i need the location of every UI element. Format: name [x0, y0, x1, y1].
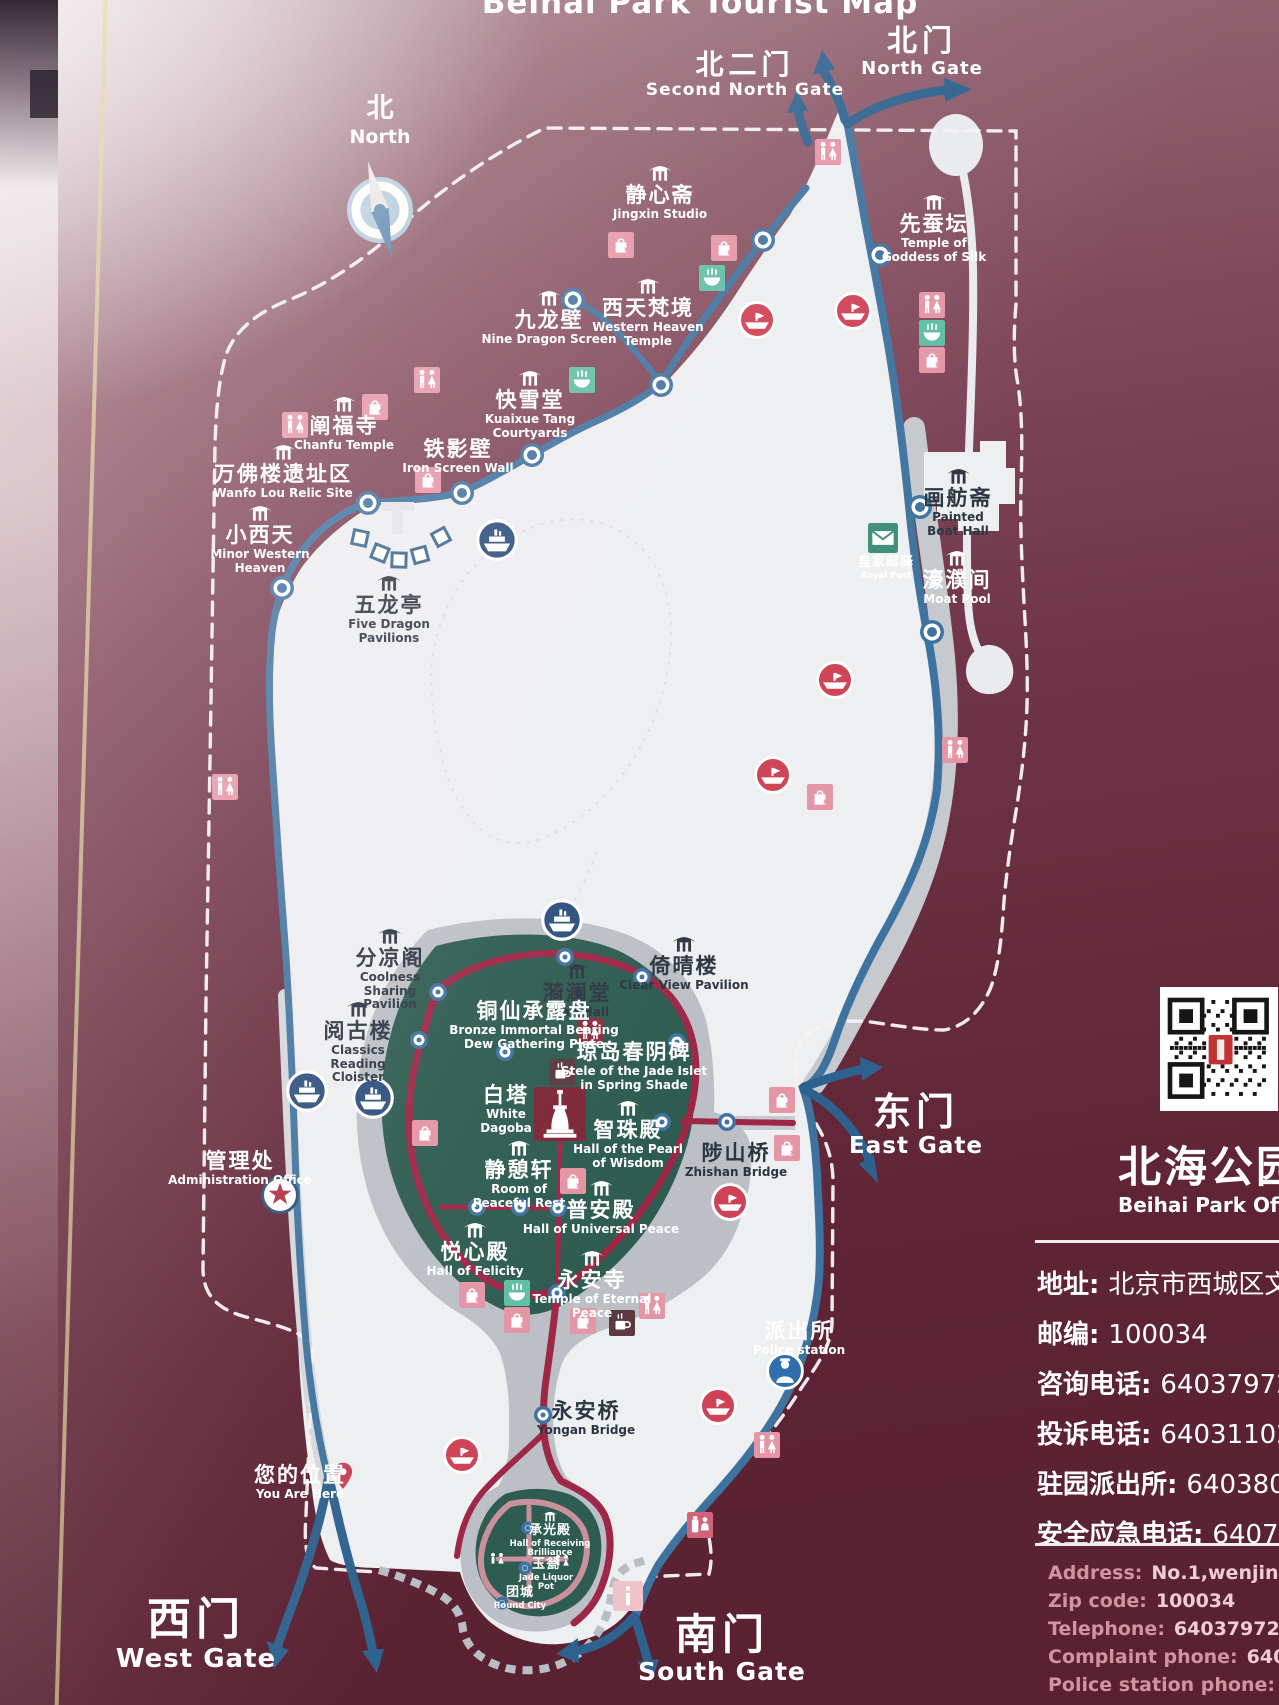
poi-label-zh: 永安寺	[531, 1269, 653, 1291]
poi-you-are-here: 您的位置You Are Here	[245, 1464, 355, 1502]
poi-label-zh: 皇家邮驿	[846, 556, 926, 570]
gate-label-en: West Gate	[116, 1644, 276, 1674]
poi-police-station: 派出所Police station	[744, 1320, 854, 1358]
police-icon	[766, 1352, 804, 1390]
poi-label-zh: 倚晴楼	[614, 955, 754, 977]
wc-icon	[212, 774, 238, 800]
gate-label-en: East Gate	[849, 1133, 983, 1159]
tourist-map-sign: Beihai Park Tourist Map 北 North 静心斋Jingx…	[0, 0, 1279, 1705]
contact-row-zh-label: 咨询电话:	[1037, 1370, 1151, 1400]
poi-classics-reading-cloister: 阅古楼Classics Reading Cloister	[306, 999, 411, 1085]
poi-stele-of-the-jade-islet-in-spring-shade: 琼岛春阴碑Stele of the Jade Islet in Spring S…	[558, 1041, 710, 1092]
contact-info-en: Address:No.1,wenjin street,xZip code:100…	[1048, 1562, 1279, 1705]
contact-row-en: Police station phone:64038	[1048, 1674, 1279, 1696]
poi-label-zh: 琼岛春阴碑	[558, 1041, 710, 1063]
contact-row-en-value: 64037972 / 6403	[1174, 1618, 1279, 1640]
poi-label-en: Yongan Bridge	[531, 1424, 641, 1437]
poi-zhishan-bridge: 陟山桥Zhishan Bridge	[681, 1142, 791, 1180]
poi-label-zh: 永安桥	[531, 1400, 641, 1422]
poi-painted-boat-hall: 画舫斋Painted Boat Hall	[924, 466, 993, 538]
poi-hall-of-universal-peace: 普安殿Hall of Universal Peace	[519, 1178, 684, 1237]
contact-row-en-value: 100034	[1156, 1590, 1235, 1612]
poi-temple-of-eternal-peace: 永安寺Temple of Eternal Peace	[531, 1248, 653, 1320]
contact-row-zh-label: 驻园派出所:	[1037, 1470, 1177, 1500]
poi-five-dragon-pavilions: 五龙亭Five Dragon Pavilions	[343, 573, 435, 645]
wc-icon	[815, 139, 841, 165]
contact-row-zh: 地址:北京市西城区文	[1037, 1264, 1279, 1301]
poi-label-zh: 阅古楼	[306, 1020, 411, 1042]
contact-row-zh-value: 北京市西城区文	[1108, 1270, 1279, 1300]
contact-row-en: Telephone:64037972 / 6403	[1048, 1618, 1279, 1640]
poi-label-zh: 画舫斋	[924, 487, 993, 509]
park-name-en: Beihai Park Offical	[1118, 1193, 1279, 1217]
poi-label-zh: 普安殿	[519, 1199, 684, 1221]
poi-label-zh: 铁影壁	[388, 438, 528, 460]
contact-row-en-value: No.1,wenjin street,x	[1151, 1562, 1279, 1584]
poi-royal-post: 皇家邮驿Royal Post	[846, 556, 926, 581]
gate-label-zh: 北门	[861, 26, 983, 58]
compass-icon	[337, 152, 423, 262]
poi-label-zh: 悦心殿	[420, 1241, 530, 1263]
poi-jingxin-studio: 静心斋Jingxin Studio	[605, 163, 715, 222]
poi-label-en: Hall of Felicity	[420, 1265, 530, 1278]
compass-north-en: North	[337, 126, 423, 148]
poi-white-dagoba: 白塔White Dagoba	[479, 1084, 534, 1135]
contact-row-zh: 邮编:100034	[1037, 1314, 1279, 1351]
poi-label-en: White Dagoba	[479, 1108, 534, 1135]
poi-label-zh: 玉瓮	[517, 1558, 575, 1572]
ship-icon	[541, 899, 583, 941]
contact-info-zh: 地址:北京市西城区文邮编:100034咨询电话:64037972投诉电话:640…	[1037, 1264, 1279, 1551]
poi-label-en: Hall of the Pearl of Wisdom	[572, 1143, 684, 1170]
poi-hall-of-the-pearl-of-wisdom: 智珠殿Hall of the Pearl of Wisdom	[572, 1098, 684, 1170]
poi-label-en: Moat Pool	[912, 593, 1002, 606]
poi-label-zh: 团城	[485, 1586, 555, 1600]
contact-row-zh-label: 地址:	[1037, 1270, 1099, 1300]
contact-row-en-label: Telephone:	[1048, 1618, 1165, 1640]
poi-label-en: Five Dragon Pavilions	[343, 618, 435, 645]
contact-row-en-label: Complaint phone:	[1048, 1646, 1238, 1668]
gate-north-gate: 北门 North Gate	[861, 26, 983, 79]
poi-label-en: Hall of Universal Peace	[519, 1223, 684, 1236]
poi-hall-of-receiving-brilliance: 承光殿Hall of Receiving Brilliance	[488, 1510, 613, 1559]
poi-label-en: Kuaixue Tang Courtyards	[480, 413, 580, 440]
contact-row-zh-label: 邮编:	[1037, 1320, 1099, 1350]
info-icon	[613, 1581, 643, 1611]
pavilion-icon	[614, 934, 754, 953]
poi-label-en: Temple of Eternal Peace	[531, 1293, 653, 1320]
shop-icon	[919, 347, 945, 373]
poi-label-zh: 管理处	[153, 1150, 328, 1172]
poi-label-en: Administration Office	[153, 1174, 328, 1187]
poi-label-zh: 阐福寺	[279, 415, 409, 437]
contact-row-zh-value: 100034	[1108, 1320, 1207, 1350]
shop-icon	[711, 235, 737, 261]
contact-row-zh-value: 64037972	[1160, 1370, 1279, 1400]
service-icon	[687, 1512, 713, 1538]
pavilion-icon	[470, 1138, 568, 1157]
poi-wanfo-lou-relic-site: 万佛楼遗址区Wanfo Lou Relic Site	[196, 442, 371, 501]
contact-row-en-label: Zip code:	[1048, 1590, 1147, 1612]
poi-label-zh: 小西天	[206, 524, 314, 546]
pavilion-icon	[572, 1098, 684, 1117]
contact-row-en: Complaint phone:6403110	[1048, 1646, 1279, 1668]
shop-icon	[807, 784, 833, 810]
poi-label-zh: 智珠殿	[572, 1119, 684, 1141]
gate-label-zh: 南门	[638, 1612, 806, 1657]
panel-divider-top	[1035, 1240, 1279, 1243]
poi-label-zh: 万佛楼遗址区	[196, 463, 371, 485]
pavilion-icon	[488, 1510, 613, 1522]
pavilion-icon	[532, 961, 622, 980]
poi-label-zh: 您的位置	[245, 1464, 355, 1486]
pavilion-icon	[605, 163, 715, 182]
wc-icon	[414, 367, 440, 393]
poi-label-zh: 派出所	[744, 1320, 854, 1342]
poi-label-en: Iron Screen Wall	[388, 462, 528, 475]
poi-minor-western-heaven: 小西天Minor Western Heaven	[206, 503, 314, 575]
poi-label-zh: 静心斋	[605, 184, 715, 206]
rest-icon	[504, 1280, 530, 1306]
boat-icon	[443, 1436, 481, 1474]
gate-label-en: North Gate	[861, 58, 983, 79]
poi-yongan-bridge: 永安桥Yongan Bridge	[531, 1400, 641, 1438]
poi-clear-view-pavilion: 倚晴楼Clear View Pavilion	[614, 934, 754, 993]
poi-label-en: Clear View Pavilion	[614, 979, 754, 992]
poi-temple-of-goddess-of-silk: 先蚕坛Temple of Goddess of Silk	[878, 192, 990, 264]
poi-label-en: Wanfo Lou Relic Site	[196, 487, 371, 500]
contact-row-zh-value: 64031102	[1160, 1420, 1279, 1450]
poi-label-en: Minor Western Heaven	[206, 548, 314, 575]
poi-label-en: Royal Post	[846, 572, 926, 582]
shop-icon	[769, 1087, 795, 1113]
pavilion-icon	[279, 394, 409, 413]
shop-icon	[412, 1120, 438, 1146]
poi-label-zh: 铜仙承露盘	[447, 1000, 622, 1022]
gate-label-zh: 东门	[849, 1092, 983, 1133]
rest-icon	[919, 320, 945, 346]
shop-icon	[459, 1282, 485, 1308]
gate-south-gate: 南门 South Gate	[638, 1612, 806, 1686]
contact-row-zh: 驻园派出所:640380	[1037, 1464, 1279, 1501]
contact-row-en: Address:No.1,wenjin street,x	[1048, 1562, 1279, 1584]
pavilion-icon	[878, 192, 990, 211]
contact-row-en-label: Address:	[1048, 1562, 1142, 1584]
poi-kuaixue-tang-courtyards: 快雪堂Kuaixue Tang Courtyards	[480, 368, 580, 440]
wc-icon	[919, 292, 945, 318]
contact-row-zh-value: 640380	[1186, 1470, 1279, 1500]
poi-label-en: Western Heaven Temple	[589, 321, 707, 348]
pavilion-icon	[519, 1178, 684, 1197]
contact-row-en-value: 6403110	[1247, 1646, 1279, 1668]
gate-label-zh: 西门	[116, 1596, 276, 1644]
poi-label-en: Hall of Receiving Brilliance	[488, 1540, 613, 1559]
pavilion-icon	[480, 368, 580, 387]
poi-label-en: Painted Boat Hall	[927, 511, 989, 538]
boat-icon	[754, 756, 792, 794]
panel-divider-bottom	[1035, 1543, 1279, 1546]
poi-label-en: You Are Here	[245, 1488, 355, 1501]
gate-west-gate: 西门 West Gate	[116, 1596, 276, 1674]
poi-label-zh: 先蚕坛	[878, 213, 990, 235]
pavilion-icon	[343, 573, 435, 592]
poi-label-zh: 白塔	[479, 1084, 534, 1106]
poi-label-zh: 分凉阁	[340, 947, 440, 969]
post-icon	[868, 523, 898, 553]
pavilion-icon	[531, 1248, 653, 1267]
poi-iron-screen-wall: 铁影壁Iron Screen Wall	[388, 438, 528, 476]
poi-label-en: Classics Reading Cloister	[306, 1044, 411, 1084]
poi-label-en: Zhishan Bridge	[681, 1166, 791, 1179]
boat-icon	[816, 661, 854, 699]
poi-label-zh: 承光殿	[488, 1524, 613, 1538]
contact-row-en: Zip code:100034	[1048, 1590, 1279, 1612]
compass: 北 North	[337, 86, 423, 262]
gate-east-gate: 东门 East Gate	[849, 1092, 983, 1159]
gate-label-en: South Gate	[638, 1657, 806, 1686]
compass-north-zh: 北	[337, 86, 423, 125]
poi-administration-office: 管理处Administration Office	[153, 1150, 328, 1188]
map-title: Beihai Park Tourist Map	[482, 0, 919, 21]
pavilion-icon	[196, 442, 371, 461]
shop-icon	[608, 232, 634, 258]
poi-label-en: Temple of Goddess of Silk	[878, 237, 990, 264]
poi-round-city: 团城Round City	[485, 1586, 555, 1611]
contact-row-zh-label: 投诉电话:	[1037, 1420, 1151, 1450]
contact-row-zh: 投诉电话:64031102	[1037, 1414, 1279, 1451]
pavilion-icon	[206, 503, 314, 522]
gate-label-en: Second North Gate	[646, 80, 844, 100]
poi-label-en: Round City	[485, 1602, 555, 1612]
boat-icon	[834, 292, 872, 330]
contact-row-en-label: Police station phone:	[1048, 1674, 1275, 1696]
poi-label-zh: 五龙亭	[343, 594, 435, 616]
poi-label-zh: 快雪堂	[480, 389, 580, 411]
pavilion-icon	[924, 466, 993, 485]
park-name-zh: 北海公园官	[1118, 1133, 1279, 1195]
boat-icon	[711, 1183, 749, 1221]
ship-icon	[476, 519, 518, 561]
pavilion-icon	[306, 999, 411, 1018]
boat-icon	[699, 1387, 737, 1425]
poi-label-en: Jingxin Studio	[605, 208, 715, 221]
pavilion-icon	[340, 926, 440, 945]
shop-icon	[504, 1307, 530, 1333]
contact-row-zh: 咨询电话:64037972	[1037, 1364, 1279, 1401]
poi-hall-of-felicity: 悦心殿Hall of Felicity	[420, 1220, 530, 1279]
poi-label-en: Stele of the Jade Islet in Spring Shade	[558, 1065, 710, 1092]
poi-label-zh: 西天梵境	[589, 297, 707, 319]
poi-label-en: Police station	[744, 1344, 854, 1357]
pavilion-icon	[589, 276, 707, 295]
qr-code	[1160, 987, 1278, 1111]
pavilion-icon	[420, 1220, 530, 1239]
boat-icon	[738, 301, 776, 339]
wc-icon	[942, 737, 968, 763]
poi-label-zh: 陟山桥	[681, 1142, 791, 1164]
gate-label-zh: 北二门	[646, 50, 844, 80]
gate-second-north-gate: 北二门 Second North Gate	[646, 50, 844, 100]
wc-icon	[754, 1432, 780, 1458]
poi-western-heaven-temple: 西天梵境Western Heaven Temple	[589, 276, 707, 348]
